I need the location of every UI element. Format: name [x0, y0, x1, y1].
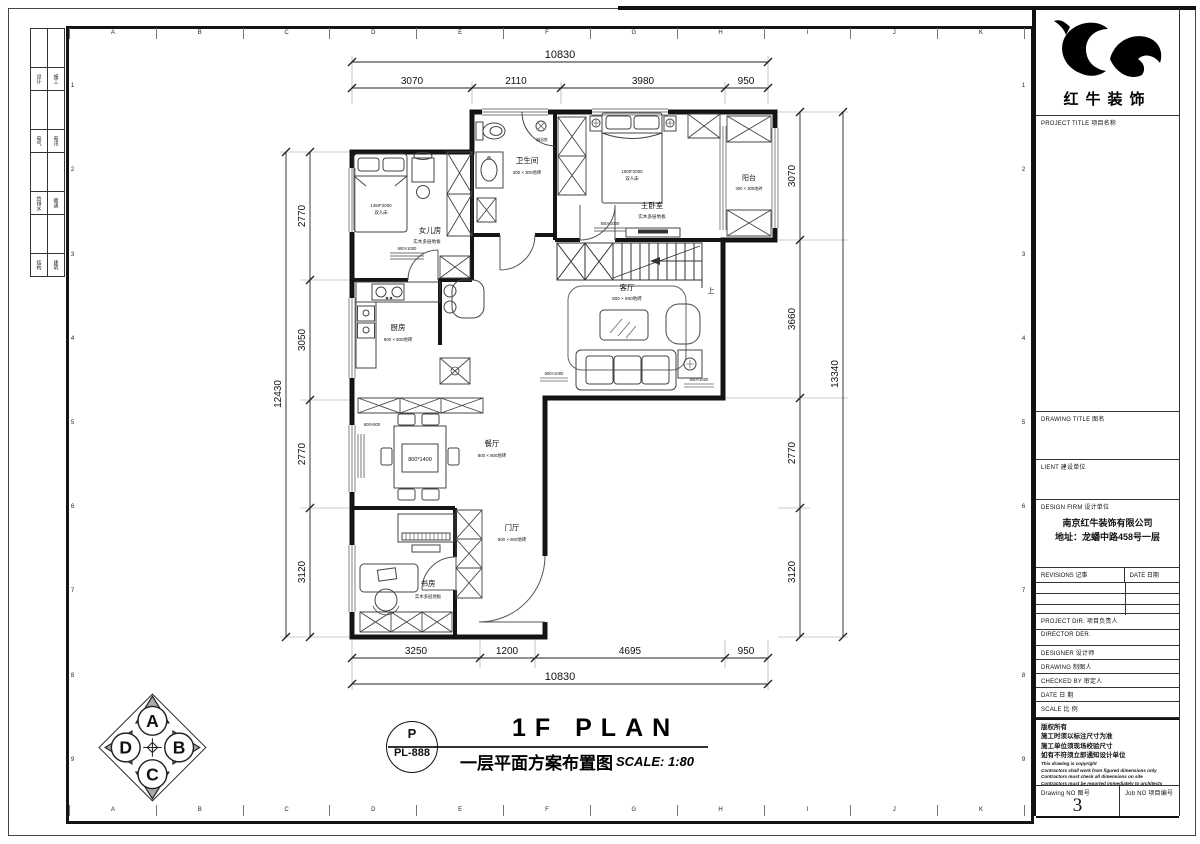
grid-letter: F — [504, 805, 591, 816]
checked-by-label: CHECKED BY 审定人 — [1036, 674, 1179, 685]
design-firm-label: DESIGN FIRM 设计单位 — [1036, 500, 1179, 511]
dining-chair — [398, 489, 415, 500]
rug-size-label: 600×1000 — [545, 371, 564, 376]
compass-letter-a: A — [146, 711, 159, 731]
room-label-dining: 餐厅 — [485, 439, 500, 448]
bar-counter — [452, 280, 484, 318]
cabinets — [358, 114, 771, 632]
lounge-chair — [666, 304, 700, 344]
grid-number: 7 — [68, 549, 77, 633]
designer-row: DESIGNER 设计师 — [1036, 646, 1179, 660]
grid-number: 2 — [68, 128, 77, 212]
dim-label: 4695 — [619, 646, 642, 657]
grid-letter: K — [938, 28, 1025, 39]
dim-label: 2770 — [297, 442, 308, 465]
drawing-by-label: DRAWING 制图人 — [1036, 660, 1179, 671]
grid-letter: A — [69, 28, 157, 39]
job-no-label: Job NO 项目编号 — [1120, 786, 1179, 797]
signature-label: 建筑 — [53, 260, 60, 270]
drawing-row: DRAWING 制图人 — [1036, 660, 1179, 674]
room-label-bathroom: 卫生间 — [516, 155, 539, 165]
rug-size-label: 600×800 — [364, 422, 381, 427]
dim-label: 3070 — [401, 76, 424, 87]
grid-letter: F — [504, 28, 591, 39]
grid-number: 9 — [68, 718, 77, 802]
design-firm-name: 南京红牛装饰有限公司 — [1036, 517, 1179, 531]
bed-type-label: 双人床 — [374, 209, 388, 216]
walls — [352, 112, 775, 637]
floor-plan: 10830 3070 2110 3980 950 3250 1200 4695 … — [270, 45, 885, 715]
client-section: LIENT 建设单位 — [1036, 460, 1179, 500]
bathroom-door — [500, 235, 535, 270]
compass-letter-b: B — [173, 738, 186, 758]
signature-label: 给排水 — [36, 196, 43, 211]
grid-number: 4 — [1019, 297, 1028, 381]
dim-label: 3120 — [787, 560, 798, 583]
grid-letter: H — [678, 805, 765, 816]
signature-strip: 设计 施工 电气 电讯 给排水 暖通 结构 建筑 — [30, 28, 65, 277]
bubble-code: PL-888 — [387, 747, 437, 759]
entry-door — [479, 556, 545, 622]
grid-letter: I — [765, 805, 852, 816]
title-block: 红牛装饰 PROJECT TITLE 项目名称 DRAWING TITLE 图名… — [1032, 8, 1180, 816]
grid-letter: D — [330, 805, 417, 816]
room-floor-bathroom: 300 × 300地砖 — [513, 169, 542, 176]
foyer-shoe-cabinet — [456, 510, 482, 598]
grid-number: 3 — [1019, 212, 1028, 296]
signature-row: 给排水 暖通 — [31, 192, 64, 215]
grid-letter: E — [417, 28, 504, 39]
piano-bench — [412, 545, 440, 552]
room-floor-kitchen: 800 × 800地砖 — [384, 336, 413, 343]
copyright-section: 版权所有 施工时须以标注尺寸为准 施工单位须现场校验尺寸 如有不符须立即通知设计… — [1036, 718, 1179, 786]
copyright-cn-4: 如有不符须立即通知设计单位 — [1036, 751, 1179, 760]
balcony-cabinet-bottom — [727, 210, 771, 236]
signature-row-empty — [31, 153, 64, 192]
dim-label: 13340 — [830, 360, 841, 388]
plan-title-en: 1F PLAN — [512, 714, 679, 743]
signature-label: 结构 — [36, 260, 43, 270]
copyright-en-3: Contractors must check all dimensions on… — [1036, 774, 1179, 781]
scale-label: SCALE 比 例 — [1036, 702, 1179, 713]
grid-letter: H — [678, 28, 765, 39]
room-label-balcony: 阳台 — [742, 173, 756, 182]
drawing-no-cell: Drawing NO 图号 3 — [1036, 786, 1120, 816]
dim-label: 3660 — [787, 307, 798, 330]
living-furniture — [540, 286, 714, 390]
job-no-cell: Job NO 项目编号 — [1120, 786, 1179, 816]
dining-chair — [422, 414, 439, 425]
daughter-room-door — [408, 250, 438, 280]
grid-letter: K — [938, 805, 1025, 816]
daughter-bed — [354, 154, 407, 232]
room-label-master: 主卧室 — [641, 200, 664, 210]
grid-letter: J — [851, 28, 938, 39]
stairs — [557, 243, 702, 288]
coffee-table — [600, 310, 648, 340]
grid-number: 6 — [1019, 465, 1028, 549]
signature-label: 设计 — [36, 74, 43, 84]
rug-size-label: 600×1000 — [690, 377, 709, 382]
sink-counter — [356, 302, 376, 368]
stairs-up-label: 上 — [708, 286, 715, 295]
grid-letter: B — [157, 805, 244, 816]
grid-number: 1 — [68, 44, 77, 128]
revision-row — [1036, 583, 1179, 594]
drawing-title-label: DRAWING TITLE 图名 — [1036, 412, 1179, 423]
plan-title-cn: 一层平面方案布置图 — [460, 749, 613, 774]
compass-letter-d: D — [119, 738, 132, 758]
compass-letter-c: C — [146, 764, 159, 784]
design-firm-address: 地址：龙蟠中路458号一层 — [1036, 531, 1179, 545]
compass-center — [143, 738, 161, 756]
signature-label: 电气 — [36, 136, 43, 146]
scale-row: SCALE 比 例 — [1036, 702, 1179, 718]
dim-label: 2770 — [297, 204, 308, 227]
copyright-cn-2: 施工时须以标注尺寸为准 — [1036, 732, 1179, 741]
grid-number: 7 — [1019, 549, 1028, 633]
grid-number: 5 — [68, 381, 77, 465]
kitchen-furniture — [356, 280, 484, 375]
grid-letter: G — [591, 805, 678, 816]
shower-label: 淋浴房 — [536, 137, 548, 142]
room-label-kitchen: 厨房 — [391, 322, 406, 332]
dim-label: 3070 — [787, 164, 798, 187]
dining-chair — [448, 448, 459, 465]
bathroom-furniture — [476, 112, 555, 188]
drawing-no-value: 3 — [1036, 795, 1119, 817]
signature-row: 设计 施工 — [31, 68, 64, 91]
signature-label: 施工 — [53, 74, 60, 84]
room-floor-master: 实木多层地板 — [638, 213, 666, 220]
entry-door-opening — [541, 556, 549, 622]
room-floor-study: 实木多层地板 — [415, 593, 442, 600]
dim-label: 1200 — [496, 646, 519, 657]
bed-type-label: 双人床 — [625, 175, 639, 182]
revisions-date-label: DATE 日期 — [1125, 568, 1179, 582]
dining-chair — [398, 414, 415, 425]
revisions-section: REVISIONS 记事 DATE 日期 — [1036, 568, 1179, 614]
grid-number: 3 — [68, 212, 77, 296]
bar-stool — [444, 301, 456, 313]
bubble-letter: P — [387, 726, 437, 741]
room-floor-living: 800 × 800地砖 — [612, 295, 642, 302]
revision-row — [1036, 594, 1179, 605]
direction-compass: A B C D — [98, 690, 213, 805]
signature-row-empty — [31, 91, 64, 130]
signature-row: 电气 电讯 — [31, 130, 64, 153]
project-title-label: PROJECT TITLE 项目名称 — [1036, 116, 1179, 127]
grid-number: 9 — [1019, 718, 1028, 802]
grid-letter: G — [591, 28, 678, 39]
brand-name: 红牛装饰 — [1036, 88, 1179, 109]
grid-letter: C — [244, 28, 331, 39]
dim-label: 12430 — [273, 380, 284, 408]
grid-number: 8 — [68, 634, 77, 718]
dim-label: 3050 — [297, 328, 308, 351]
room-floor-daughter: 实木多层地板 — [413, 238, 441, 245]
master-cabinet — [688, 114, 720, 138]
grid-letter: J — [851, 805, 938, 816]
dining-sideboard — [358, 398, 483, 413]
dining-chair — [381, 448, 392, 465]
grid-number: 4 — [68, 297, 77, 381]
understair-storage — [557, 243, 613, 280]
grid-letter: A — [69, 805, 157, 816]
bath-rack — [477, 198, 496, 222]
dining-chair — [422, 489, 439, 500]
room-label-living: 客厅 — [620, 282, 635, 292]
date-row: DATE 日 期 — [1036, 688, 1179, 702]
drawing-sheet: A B C D E F G H I J K A B C D E F G H I … — [0, 0, 1200, 844]
bed-size-label: 1350*2000 — [370, 203, 392, 208]
stool — [417, 186, 430, 199]
date-label: DATE 日 期 — [1036, 688, 1179, 699]
tv — [638, 230, 668, 234]
grid-letter: E — [417, 805, 504, 816]
signature-row-empty — [31, 215, 64, 254]
drawing-code-bubble: P PL-888 — [386, 721, 438, 773]
signature-label: 暖通 — [53, 198, 60, 208]
dim-label: 950 — [738, 76, 755, 87]
copyright-cn-1: 版权所有 — [1036, 720, 1179, 732]
laptop — [377, 568, 396, 581]
master-bed — [602, 113, 662, 203]
rednow-bull-logo-icon — [1050, 14, 1170, 86]
design-firm-section: DESIGN FIRM 设计单位 南京红牛装饰有限公司 地址：龙蟠中路458号一… — [1036, 500, 1179, 568]
grid-number: 1 — [1019, 44, 1028, 128]
toilet — [476, 122, 483, 140]
master-furniture — [590, 113, 680, 237]
doors — [408, 205, 615, 622]
daughter-cabinet — [440, 256, 470, 278]
rug-size-label: 600×1000 — [398, 246, 417, 251]
director-row: DIRECTOR DER. — [1036, 630, 1179, 646]
signature-row: 结构 建筑 — [31, 254, 64, 276]
dim-label: 950 — [738, 646, 755, 657]
rug-size-label: 600×1000 — [601, 221, 620, 226]
revisions-label: REVISIONS 记事 — [1036, 568, 1125, 582]
copyright-cn-3: 施工单位须现场校验尺寸 — [1036, 742, 1179, 751]
fish-tank — [440, 358, 470, 384]
balcony-cabinet-top — [727, 116, 771, 142]
dim-label: 2770 — [787, 441, 798, 464]
study-furniture — [360, 564, 418, 615]
dim-label: 2110 — [505, 76, 527, 87]
copyright-en-2: Contractors shall work from figured dime… — [1036, 768, 1179, 775]
master-wardrobe — [558, 117, 586, 195]
daughter-wardrobe — [447, 152, 472, 236]
project-dir-label: PROJECT DIR. 项目负责人 — [1036, 614, 1179, 625]
signature-row-empty — [31, 29, 64, 68]
grid-letter-band-top: A B C D E F G H I J K — [69, 28, 1025, 39]
project-title-section: PROJECT TITLE 项目名称 — [1036, 116, 1179, 412]
signature-label: 电讯 — [53, 136, 60, 146]
grid-letter: I — [765, 28, 852, 39]
revisions-header: REVISIONS 记事 DATE 日期 — [1036, 568, 1179, 583]
kitchen-sink — [358, 306, 375, 321]
plan-scale-note: SCALE: 1:80 — [616, 754, 694, 769]
grid-number-strip-left: 1 2 3 4 5 6 7 8 9 — [68, 44, 77, 802]
client-label: LIENT 建设单位 — [1036, 460, 1179, 471]
foyer-furniture — [398, 514, 454, 552]
project-dir-row: PROJECT DIR. 项目负责人 — [1036, 614, 1179, 630]
grid-letter-band-bottom: A B C D E F G H I J K — [69, 805, 1025, 816]
dim-label: 3120 — [297, 560, 308, 583]
grid-number-strip-right: 1 2 3 4 5 6 7 8 9 — [1019, 44, 1028, 802]
room-label-study: 书房 — [421, 578, 436, 588]
interior-walls — [352, 112, 723, 637]
kitchen-counter — [356, 282, 440, 302]
windows — [347, 107, 780, 612]
grid-letter: B — [157, 28, 244, 39]
dressing-table — [412, 158, 434, 182]
logo-section: 红牛装饰 — [1036, 8, 1179, 116]
room-floor-dining: 800 × 800地砖 — [478, 452, 507, 459]
bed-size-label: 1500*2000 — [621, 169, 643, 174]
designer-label: DESIGNER 设计师 — [1036, 646, 1179, 657]
grid-number: 8 — [1019, 634, 1028, 718]
room-label-foyer: 门厅 — [505, 523, 520, 532]
stair-up-arrow — [660, 261, 702, 288]
dim-label: 3980 — [632, 76, 655, 87]
grid-letter: D — [330, 28, 417, 39]
outer-wall — [352, 112, 775, 637]
drawing-number-section: Drawing NO 图号 3 Job NO 项目编号 — [1036, 786, 1179, 818]
dim-label: 10830 — [545, 49, 576, 61]
grid-letter: C — [244, 805, 331, 816]
copyright-en-1: This drawing is copyright — [1036, 761, 1179, 768]
drawing-title-section: DRAWING TITLE 图名 — [1036, 412, 1179, 460]
grid-number: 2 — [1019, 128, 1028, 212]
grid-number: 6 — [68, 465, 77, 549]
bar-stool — [444, 285, 456, 297]
dim-label: 3250 — [405, 646, 428, 657]
table-size-label: 800*1400 — [408, 457, 432, 463]
study-bookshelf — [360, 612, 452, 632]
grid-number: 5 — [1019, 381, 1028, 465]
room-floor-foyer: 800 × 800地砖 — [498, 536, 527, 543]
room-floor-balcony: 300 × 300地砖 — [735, 185, 762, 192]
dim-label: 10830 — [545, 671, 576, 683]
checked-row: CHECKED BY 审定人 — [1036, 674, 1179, 688]
director-label: DIRECTOR DER. — [1036, 630, 1179, 638]
room-label-daughter: 女儿房 — [419, 225, 442, 235]
